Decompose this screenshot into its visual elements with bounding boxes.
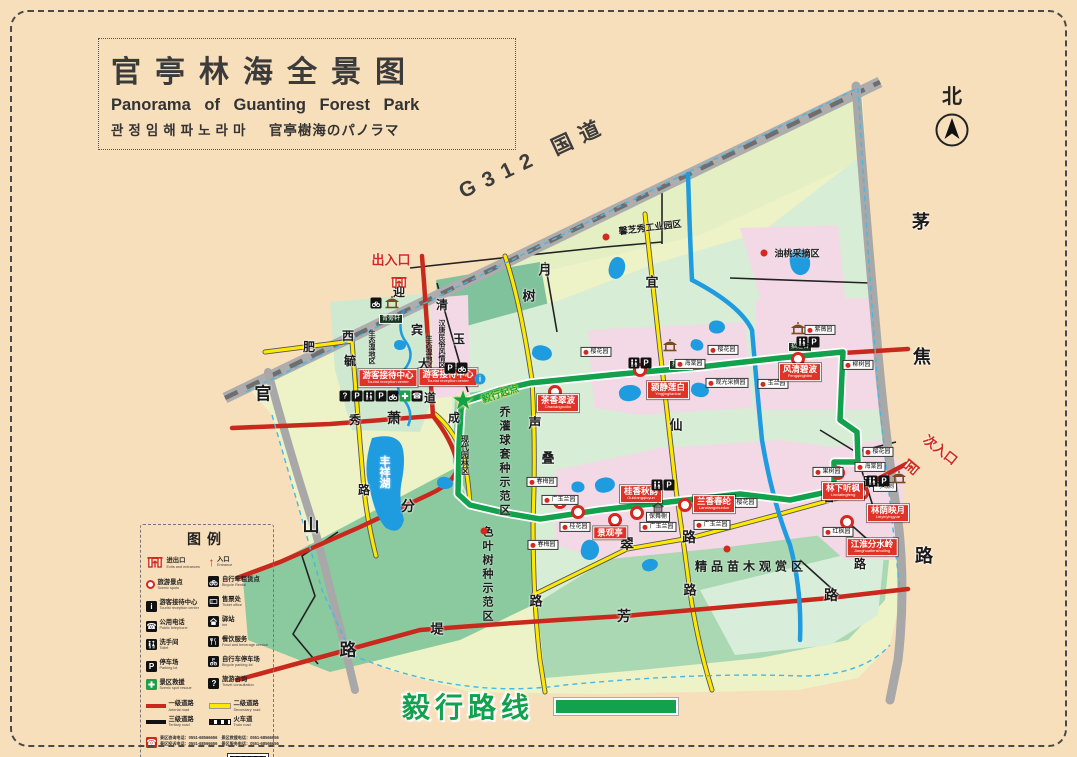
road-name-char: 宜 [645, 276, 658, 289]
legend-item: 洗手间Toilet [146, 636, 204, 654]
garden-label: 春梅园 [526, 477, 557, 487]
pond [572, 482, 585, 493]
legend-title: 图例 [146, 529, 268, 549]
road-name-char: 月 [538, 264, 551, 277]
road-name-char: 路 [340, 642, 357, 659]
pond [594, 476, 617, 495]
road-name-char: 叠 [541, 452, 554, 465]
complaint-phone: 景区投诉电话：0551-68566656 景区服务电话：0551-6856665… [160, 741, 279, 747]
road-name-char: 玉 [453, 333, 465, 345]
garden-label: 果树园 [812, 467, 843, 477]
legend-road-item: 二级道路Secondary road [209, 701, 268, 712]
road-name-char: 清 [436, 299, 448, 311]
map-p-icon: P [641, 358, 652, 369]
garden-label: 桂花园 [559, 522, 590, 532]
entrance-label: 出入口 [371, 250, 410, 269]
road-name-char: 肥 [303, 341, 315, 353]
road-name-char: 路 [682, 530, 696, 544]
garden-label: 紫薇园 [804, 325, 835, 335]
map-q-icon: ? [340, 391, 351, 402]
garden-label: 海棠园 [854, 462, 885, 472]
road-name-char: 路 [683, 584, 696, 597]
pond [618, 384, 642, 403]
north-indicator: 北 [930, 80, 974, 153]
legend-road-item: 一级道路Arterial road [146, 701, 205, 712]
scenic-dot [481, 528, 488, 535]
legend-item: ↑入口Entrance [208, 553, 268, 571]
page-title-ja: 官亭樹海のパノラマ [269, 123, 400, 138]
legend-item: ☎公用电话Public telephone [146, 616, 204, 634]
legend-item: i游客接待中心Tourist reception center [146, 596, 204, 614]
road-name-char: 道 [424, 392, 436, 404]
road-name-char: 萧 [387, 411, 401, 425]
uparr-icon: ↑ [208, 553, 214, 571]
page-title: 官亭林海全景图 [111, 47, 503, 91]
map-p-icon: P [445, 363, 456, 374]
scenic-spot-marker [608, 513, 622, 527]
road-name-char: 茅 [912, 213, 930, 231]
map-wc-icon [652, 480, 663, 491]
map-star-icon: ★ [451, 387, 474, 413]
scenic-spot-label: 游客接待中心Tourist reception center [358, 369, 417, 387]
garden-label: 广玉兰园 [541, 495, 578, 505]
area-label: 油桃采摘区 [774, 247, 819, 260]
garden-label: 柳树园 [842, 360, 873, 370]
wc-icon [146, 636, 157, 654]
page-title-ko: 관정임해파노라마 [111, 123, 250, 138]
legend-column: ↑入口Entrance自行车租赁点Bicycle Rental售票处Ticket… [208, 551, 268, 696]
road-name-char: 声 [528, 417, 541, 430]
garden-label: 广玉兰园 [693, 520, 730, 530]
legend-road-item: 三级道路Tertiary road [146, 717, 205, 728]
map-p-icon: P [809, 337, 820, 348]
cross-icon [146, 676, 157, 694]
donut-icon [146, 576, 155, 594]
legend-item: P自行车停车场Bicycle parking lot [208, 653, 268, 671]
road-name-char: 路 [854, 558, 866, 570]
map-p-icon: P [879, 476, 890, 487]
scenic-spot-label: 江淮分水岭Jianghuaifenshuiling [847, 538, 898, 556]
garden-label: 青蒡轩 [379, 314, 403, 324]
scenic-spot-marker [630, 506, 644, 520]
map-p-icon: P [664, 480, 675, 491]
bike-icon [208, 573, 219, 591]
legend-item: 餐饮服务Food and beverage service [208, 633, 268, 651]
entrance-label: 次入口 [920, 430, 962, 469]
map-gate-icon [390, 273, 408, 289]
road-name-char: 路 [529, 595, 542, 608]
map-p-icon: P [352, 391, 363, 402]
map-bike-icon [388, 391, 399, 402]
road-sample-yellow [209, 703, 231, 709]
scenic-dot [603, 234, 610, 241]
road-name-char: 堤 [430, 623, 443, 636]
pond [689, 338, 705, 353]
route-legend: 毅行路线 [402, 686, 678, 726]
garden-label: 观光采摘园 [705, 378, 748, 388]
map-house-icon [652, 503, 665, 514]
pond [531, 344, 553, 362]
area-label: 色叶树种示范区 [479, 526, 495, 624]
legend-item: 自行车租赁点Bicycle Rental [208, 573, 268, 591]
map-wc-icon [629, 358, 640, 369]
scenic-spot-label: 风清碧波Fengqingbibo [779, 363, 821, 381]
road-name-char: 山 [303, 518, 320, 535]
road-name-char: 焦 [913, 348, 931, 366]
pond [606, 255, 627, 280]
route-name: 毅行路线 [402, 686, 534, 726]
area-label: 丰祥湖 [376, 456, 392, 489]
bikep-icon: P [208, 653, 219, 671]
north-label: 北 [930, 80, 974, 109]
q-icon: ? [208, 673, 219, 691]
svg-text:P: P [213, 657, 216, 662]
scenic-spot-label: 兰香春纶Lanxiangchunlun [693, 495, 735, 513]
scenic-spot-label: 林荫映月Linyinyingyue [867, 504, 909, 522]
food-icon [208, 633, 219, 651]
pond [579, 538, 601, 562]
area-label: 乔灌球套种示范区 [496, 406, 512, 518]
map-pav-icon [790, 322, 807, 336]
garden-label: 樱花园 [580, 347, 611, 357]
inn-icon [208, 613, 219, 631]
map-wc-icon [797, 337, 808, 348]
garden-label: 樱花园 [862, 447, 893, 457]
legend-item: 售票处Ticket office [208, 593, 268, 611]
area-label: 现代园林区 [460, 435, 471, 475]
pond [394, 340, 406, 350]
pond [436, 476, 454, 490]
gate-icon [146, 553, 164, 574]
legend-item: 旅游景点Scenic spots [146, 576, 204, 594]
page-title-en: Panorama of Guanting Forest Park [111, 96, 503, 115]
road-name-char: 路 [915, 547, 933, 565]
scenic-spot-marker [571, 505, 585, 519]
garden-label: 春梅园 [527, 540, 558, 550]
route-line-sample [554, 698, 678, 715]
road-name-char: 宾 [411, 324, 423, 336]
legend-item: 进出口Exits and entrances [146, 553, 204, 574]
legend-item: ?旅游咨询Travel consultation [208, 673, 268, 691]
map-stage: 游客接待中心Tourist reception center游客接待中心Tour… [0, 0, 1077, 757]
area-label: 生态湿地区 [366, 330, 376, 365]
garden-label: 广玉兰园 [639, 522, 676, 532]
garden-label: 红枫园 [822, 527, 853, 537]
legend-panel: 图例 进出口Exits and entrances旅游景点Scenic spot… [140, 524, 274, 757]
road-name-char: 分 [401, 499, 415, 513]
road-name-char: 秀 [349, 414, 361, 426]
legend-item: P停车场Parking lot [146, 656, 204, 674]
area-label: 汉唐民俗风情区 [436, 320, 446, 369]
map-pav-icon [891, 471, 908, 485]
legend-column: 进出口Exits and entrances旅游景点Scenic spotsi游… [146, 551, 204, 696]
road-name-char: 树 [522, 290, 535, 303]
legend-road-item: 火车道Train road [209, 717, 268, 728]
road-name-char: 西 [342, 330, 354, 342]
map-tel-icon: ☎ [412, 391, 423, 402]
scenic-spot-label: 林下听枫Linxiatingfeng [822, 482, 864, 500]
garden-label: 海棠园 [674, 359, 705, 369]
scenic-dot [724, 546, 731, 553]
map-wc-icon [867, 476, 878, 487]
scenic-spot-label: 颍静莲白Yingjinglianbai [647, 381, 689, 399]
road-name-char: 芳 [617, 609, 631, 623]
pond [641, 557, 660, 573]
area-label: 馨芝秀工业园区 [618, 217, 682, 238]
map-info-icon: i [475, 374, 486, 385]
legend-item: 驿站Inn [208, 613, 268, 631]
route-start-label: 毅行起点 [480, 380, 520, 405]
map-wc-icon [364, 391, 375, 402]
area-label: 精品苗木观赏区 [695, 558, 807, 575]
scenic-spot-marker [678, 498, 692, 512]
scenic-dot [761, 250, 768, 257]
tel-icon: ☎ [146, 616, 157, 634]
road-name-char: 官 [255, 386, 272, 403]
pond [709, 321, 725, 334]
road-name-char: 毓 [344, 355, 356, 367]
ticket-icon [208, 593, 219, 611]
map-pav-icon [662, 339, 679, 353]
road-sample-rail [209, 719, 231, 725]
p-icon: P [146, 656, 157, 674]
road-name-char: 路 [358, 484, 370, 496]
map-pav-icon [384, 296, 401, 310]
legend-item: 景区救援Scenic spot rescue [146, 676, 204, 694]
scenic-spot-label: 茶香翠波Chaxiangcuibo [537, 394, 579, 412]
scenic-spot-label: 景观亭 [593, 526, 627, 539]
road-name-char: 仙 [669, 419, 682, 432]
info2-icon: i [146, 596, 157, 614]
road-sample-black [146, 720, 166, 724]
road-sample-red [146, 704, 166, 708]
compass-icon [934, 112, 970, 148]
title-box: 官亭林海全景图 Panorama of Guanting Forest Park… [98, 38, 516, 150]
garden-label: 樱花园 [707, 345, 738, 355]
map-p-icon: P [376, 391, 387, 402]
road-name-char: 路 [824, 588, 838, 602]
map-cross-icon [400, 391, 411, 402]
map-bike-icon [457, 363, 468, 374]
map-bike-icon [371, 298, 382, 309]
